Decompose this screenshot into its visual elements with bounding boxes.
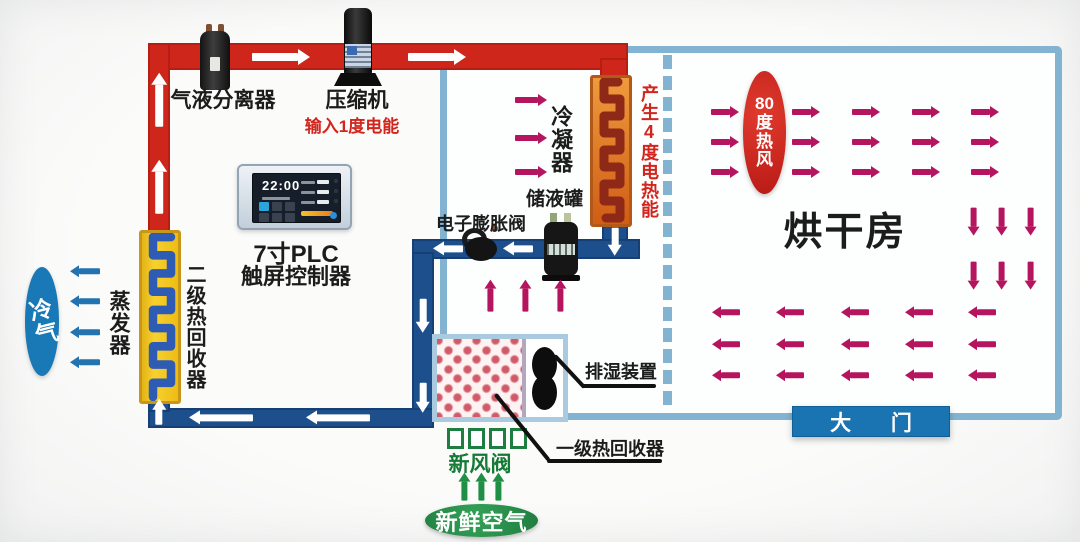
down-flow-arrow <box>1024 262 1037 290</box>
left-flow-arrow <box>841 306 869 319</box>
right-flow-arrow <box>515 165 547 178</box>
left-flow-arrow <box>70 295 100 308</box>
right-flow-arrow <box>711 135 739 148</box>
left-flow-arrow <box>776 338 804 351</box>
left-flow-arrow <box>841 369 869 382</box>
up-flow-arrow <box>150 73 168 127</box>
left-flow-arrow <box>306 410 370 425</box>
down-flow-arrow <box>1024 208 1037 236</box>
right-flow-arrow <box>971 135 999 148</box>
left-flow-arrow <box>712 369 740 382</box>
down-flow-arrow <box>995 208 1008 236</box>
up-flow-arrow <box>483 280 496 312</box>
right-flow-arrow <box>792 105 820 118</box>
left-flow-arrow <box>503 241 533 256</box>
right-flow-arrow <box>408 48 466 66</box>
flow-arrow-layer <box>0 0 1080 542</box>
left-flow-arrow <box>712 338 740 351</box>
right-flow-arrow <box>711 165 739 178</box>
up-flow-arrow <box>474 473 487 501</box>
down-flow-arrow <box>607 228 622 256</box>
right-flow-arrow <box>792 165 820 178</box>
left-flow-arrow <box>776 369 804 382</box>
right-flow-arrow <box>912 165 940 178</box>
up-flow-arrow <box>518 280 531 312</box>
down-flow-arrow <box>995 262 1008 290</box>
heat-pump-dryer-diagram: 22:00 <box>0 0 1080 542</box>
right-flow-arrow <box>971 105 999 118</box>
left-flow-arrow <box>433 241 463 256</box>
down-flow-arrow <box>415 383 430 413</box>
right-flow-arrow <box>912 105 940 118</box>
right-flow-arrow <box>252 48 310 66</box>
left-flow-arrow <box>968 306 996 319</box>
right-flow-arrow <box>912 135 940 148</box>
left-flow-arrow <box>712 306 740 319</box>
right-flow-arrow <box>515 131 547 144</box>
right-flow-arrow <box>792 135 820 148</box>
left-flow-arrow <box>70 356 100 369</box>
left-flow-arrow <box>70 326 100 339</box>
left-flow-arrow <box>70 265 100 278</box>
up-flow-arrow <box>491 473 504 501</box>
left-flow-arrow <box>905 306 933 319</box>
up-flow-arrow <box>457 473 470 501</box>
left-flow-arrow <box>776 306 804 319</box>
left-flow-arrow <box>968 369 996 382</box>
right-flow-arrow <box>971 165 999 178</box>
right-flow-arrow <box>852 135 880 148</box>
right-flow-arrow <box>852 165 880 178</box>
right-flow-arrow <box>515 93 547 106</box>
up-flow-arrow <box>151 399 166 425</box>
left-flow-arrow <box>968 338 996 351</box>
left-flow-arrow <box>905 369 933 382</box>
left-flow-arrow <box>841 338 869 351</box>
left-flow-arrow <box>189 410 253 425</box>
down-flow-arrow <box>967 208 980 236</box>
right-flow-arrow <box>711 105 739 118</box>
down-flow-arrow <box>415 299 430 333</box>
up-flow-arrow <box>553 280 566 312</box>
down-flow-arrow <box>967 262 980 290</box>
right-flow-arrow <box>852 105 880 118</box>
left-flow-arrow <box>905 338 933 351</box>
up-flow-arrow <box>150 160 168 214</box>
